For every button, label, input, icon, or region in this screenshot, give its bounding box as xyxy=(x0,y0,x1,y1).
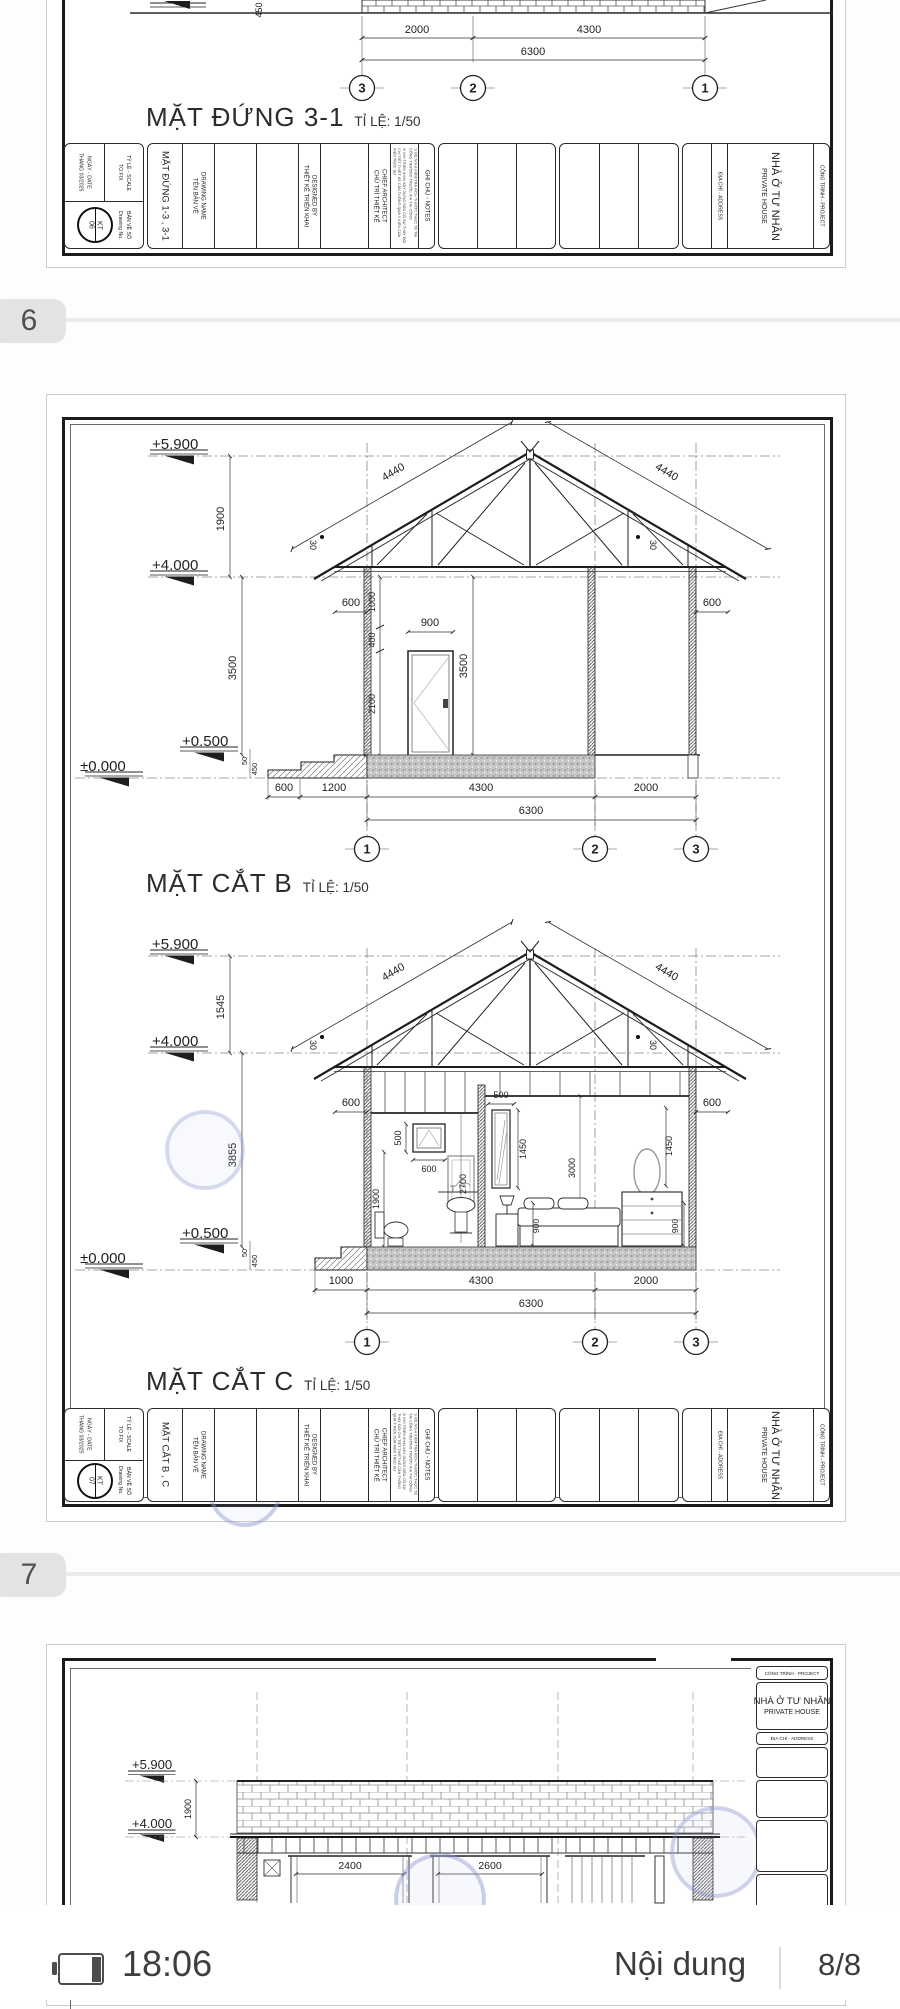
battery-icon xyxy=(58,1953,104,1985)
page7-border-top-left xyxy=(62,1658,656,1661)
sheet-number-stamp: 07KT Drawing No.BẢN VẼ SỐ xyxy=(65,1460,143,1501)
page6-border-left xyxy=(62,417,65,1507)
separator-line-6 xyxy=(60,318,900,322)
drawing-scale-text: TỈ LỆ: 1/50 xyxy=(354,114,420,129)
scale-cell: TO FIXTỶ LỆ - SCALE xyxy=(104,144,144,201)
sheet-number-stamp: 06KT Drawing No.BẢN VẼ SỐ xyxy=(65,201,143,248)
project-name-cell: NHÀ Ở TƯ NHÂN PRIVATE HOUSE xyxy=(756,1682,828,1730)
drawing-title-text: MẶT CẮT B xyxy=(146,868,293,898)
drawing-name-cell: MẶT CẮT B , C xyxy=(148,1409,182,1501)
page6-border-bottom xyxy=(62,1504,833,1507)
date-cell: THÁNG 03/2025NGÀY - DATE xyxy=(65,144,104,201)
scale-cell: TO FIXTỶ LỆ - SCALE xyxy=(104,1409,144,1460)
project-name-cell: PRIVATE HOUSENHÀ Ở TƯ NHÂN xyxy=(727,1409,813,1501)
title-block-page5: THÁNG 03/2025NGÀY - DATE TO FIXTỶ LỆ - S… xyxy=(64,143,830,249)
page6-inner-frame xyxy=(70,424,825,1498)
address-label: ĐỊA CHỈ - ADDRESS xyxy=(711,144,727,248)
drawing-name-cell: MẶT ĐỨNG 1-3 , 3-1 xyxy=(148,144,182,248)
notes-label-cell: GHI CHÚ - NOTES xyxy=(418,144,434,248)
drawing-name-label: TÊN BẢN VẼDRAWING NAME xyxy=(182,144,214,248)
drawing-title-section-b: MẶT CẮT BTỈ LỆ: 1/50 xyxy=(146,868,369,899)
drawing-title-elevation: MẶT ĐỨNG 3-1TỈ LỆ: 1/50 xyxy=(146,102,420,133)
notes-label-cell: GHI CHÚ - NOTES xyxy=(418,1409,434,1501)
designed-by-cell: THIẾT KẾ TRIỂN KHAIDESIGNED BY xyxy=(298,1409,320,1501)
project-label: CÔNG TRÌNH - PROJECT xyxy=(756,1666,828,1680)
contents-button[interactable]: Nội dung xyxy=(614,1945,746,1983)
drawing-title-section-c: MẶT CẮT CTỈ LỆ: 1/50 xyxy=(146,1366,370,1397)
page5-border-bottom xyxy=(62,253,833,256)
date-cell: THÁNG 03/2025NGÀY - DATE xyxy=(65,1409,104,1460)
page7-border-top-right xyxy=(731,1658,833,1661)
drawing-title-text: MẶT ĐỨNG 3-1 xyxy=(146,102,344,132)
page6-border-right xyxy=(830,417,833,1507)
status-divider xyxy=(779,1947,781,1989)
page5-border-right xyxy=(830,0,833,253)
project-name-cell: PRIVATE HOUSENHÀ Ở TƯ NHÂN xyxy=(727,144,813,248)
notes-text-cell: 2/ KHI TRIỂN KHAI XÂY DỰNG NẾU CÓ SỰ THA… xyxy=(390,144,418,248)
battery-nub xyxy=(52,1962,57,1975)
designed-by-cell: THIẾT KẾ TRIỂN KHAIDESIGNED BY xyxy=(298,144,320,248)
clock-time: 18:06 xyxy=(122,1943,212,1985)
status-bar: 18:06 Nội dung 8/8 xyxy=(0,1905,900,2000)
title-block-page6: THÁNG 03/2025NGÀY - DATE TO FIXTỶ LỆ - S… xyxy=(64,1408,830,1502)
chief-architect-cell: CHỦ TRÌ THIẾT KẾCHIEF ARCHITECT xyxy=(368,144,390,248)
project-label: CÔNG TRÌNH - PROJECT xyxy=(813,1409,829,1501)
drawing-scale-text: TỈ LỆ: 1/50 xyxy=(304,1378,370,1393)
notes-text-cell: 2/ KHI TRIỂN KHAI XÂY DỰNG NẾU CÓ SỰ THA… xyxy=(390,1409,418,1501)
page6-border xyxy=(62,417,833,420)
page-number-tab-7: 7 xyxy=(0,1553,66,1597)
page-indicator[interactable]: 8/8 xyxy=(818,1947,861,1983)
address-label: ĐỊA CHỈ - ADDRESS xyxy=(756,1732,828,1745)
page-number-tab-6: 6 xyxy=(0,299,66,343)
project-label: CÔNG TRÌNH - PROJECT xyxy=(813,144,829,248)
chief-architect-cell: CHỦ TRÌ THIẾT KẾCHIEF ARCHITECT xyxy=(368,1409,390,1501)
separator-line-7 xyxy=(60,1572,900,1576)
drawing-scale-text: TỈ LỆ: 1/50 xyxy=(303,880,369,895)
address-label: ĐỊA CHỈ - ADDRESS xyxy=(711,1409,727,1501)
drawing-name-label: TÊN BẢN VẼDRAWING NAME xyxy=(182,1409,214,1501)
drawing-title-text: MẶT CẮT C xyxy=(146,1366,294,1396)
battery-level-fill xyxy=(92,1957,101,1982)
